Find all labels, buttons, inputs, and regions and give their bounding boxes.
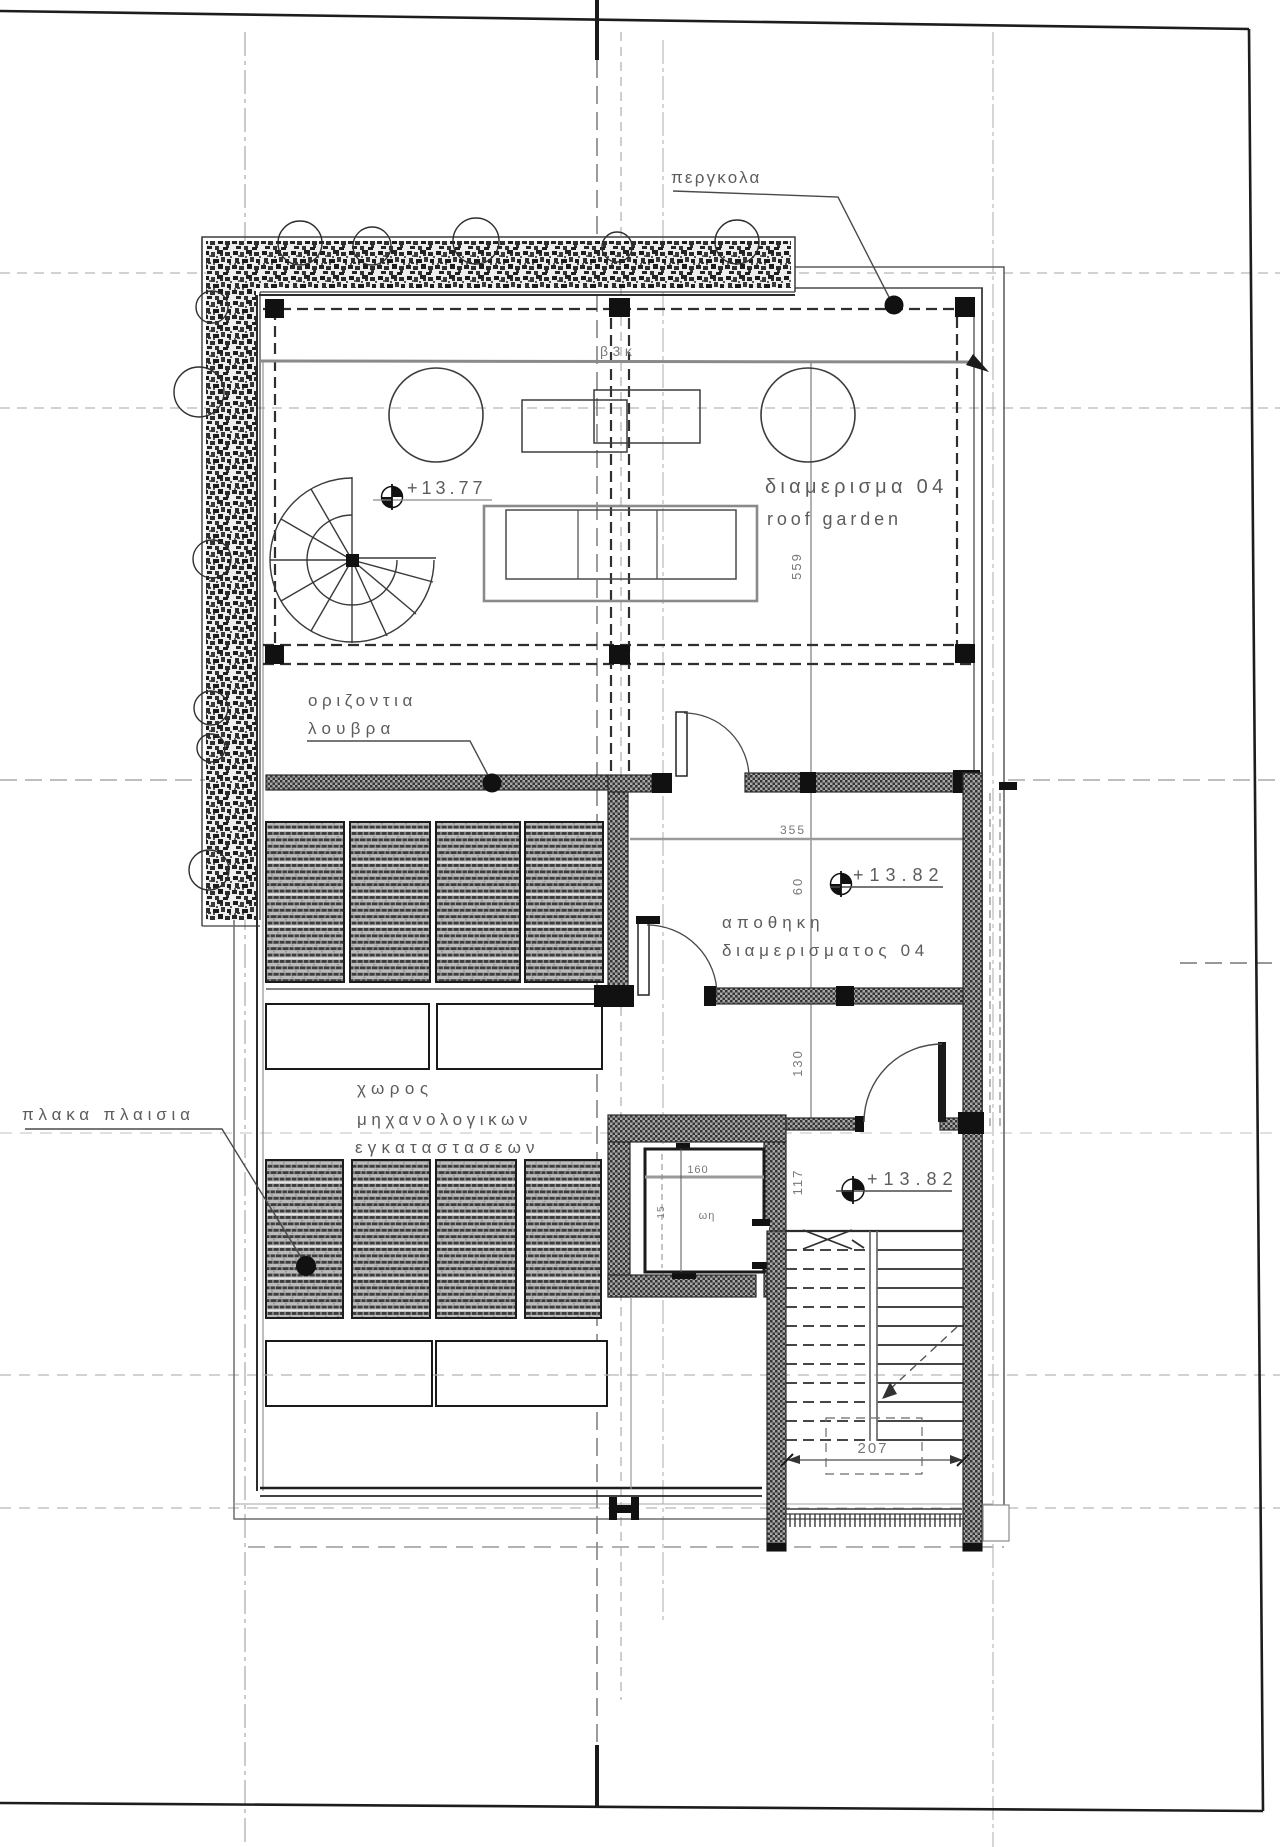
svg-text:οριζοντια: οριζοντια [308,691,417,710]
svg-text:μηχανολογικων: μηχανολογικων [357,1110,532,1129]
svg-text:355: 355 [780,823,806,837]
svg-text:160: 160 [687,1164,708,1176]
svg-text:β3κ: β3κ [600,343,636,359]
svg-text:60: 60 [790,877,805,895]
svg-text:διαμερισματος 04: διαμερισματος 04 [722,941,929,960]
svg-text:ωη: ωη [699,1210,716,1222]
svg-text:διαμερισμα 04: διαμερισμα 04 [765,476,948,498]
svg-text:αποθηκη: αποθηκη [722,913,825,932]
svg-text:117: 117 [790,1169,805,1196]
svg-text:χωρος: χωρος [357,1079,434,1098]
svg-text:+13.82: +13.82 [853,865,945,885]
svg-text:207: 207 [857,1440,888,1457]
svg-text:130: 130 [790,1049,805,1077]
svg-text:+13.77: +13.77 [407,478,487,498]
svg-text:περγκολα: περγκολα [671,168,762,187]
svg-text:559: 559 [789,552,804,580]
svg-text:εγκαταστασεων: εγκαταστασεων [355,1138,540,1157]
svg-text:+13.82: +13.82 [867,1169,959,1189]
svg-text:λουβρα: λουβρα [308,719,395,738]
svg-text:15: 15 [656,1205,667,1218]
svg-text:πλακα πλαισια: πλακα πλαισια [22,1105,195,1124]
svg-text:roof garden: roof garden [767,509,902,529]
